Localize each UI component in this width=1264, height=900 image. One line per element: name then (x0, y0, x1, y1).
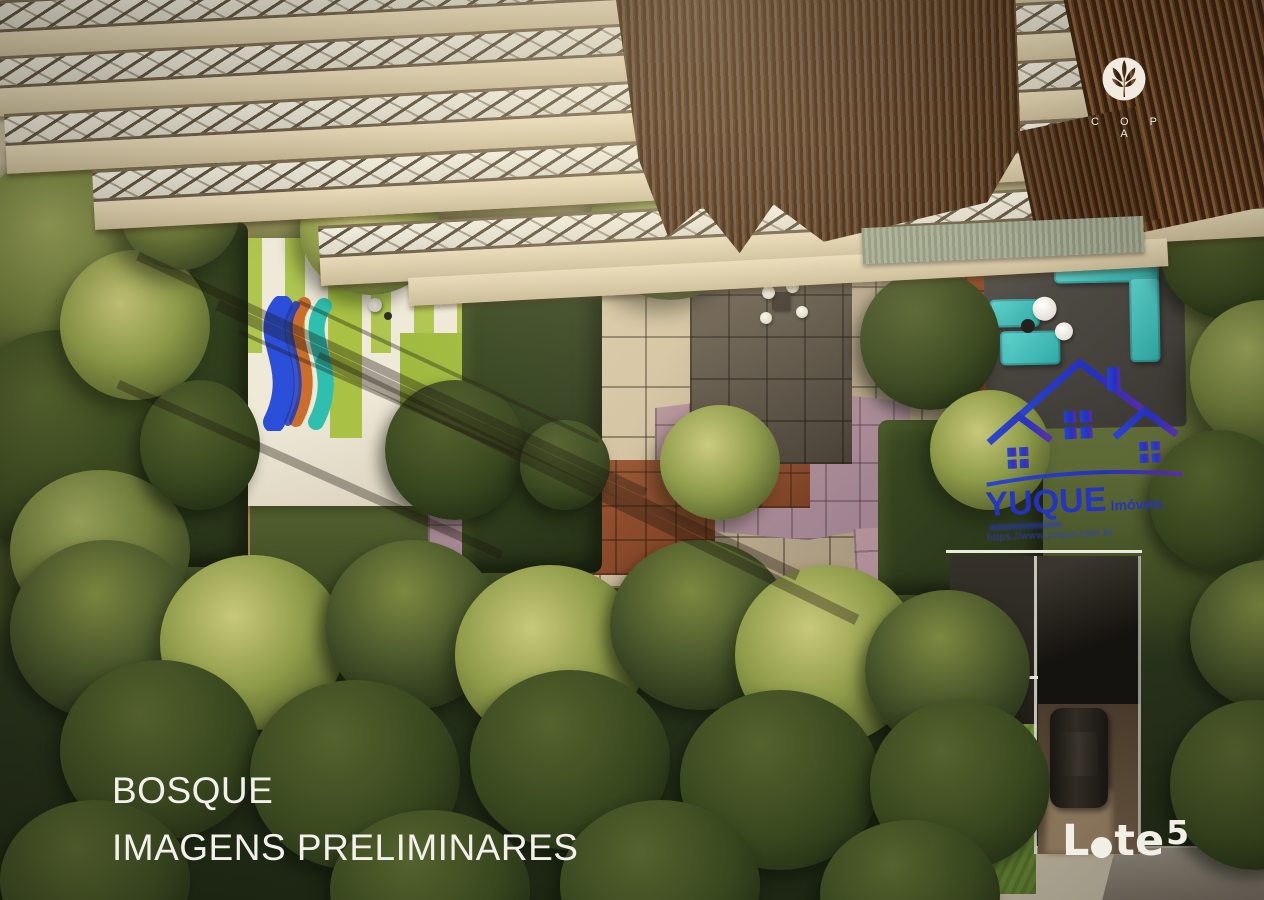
watermark: YUQUE Imóveis https://www.yuque.com.br (979, 343, 1211, 544)
lot-o-disc-icon (1091, 837, 1112, 858)
lot-badge: L te 5 (1062, 820, 1189, 863)
aerial-render-image: C O P A (0, 0, 1264, 900)
watermark-brand-suffix: Imóveis (1110, 495, 1163, 513)
copa-logo: C O P A (1078, 56, 1170, 140)
caption: BOSQUE IMAGENS PRELIMINARES (112, 762, 578, 876)
watermark-brand: YUQUE (985, 483, 1107, 522)
lot-badge-number: 5 (1166, 816, 1189, 849)
houses-outline-icon (979, 344, 1185, 487)
caption-line-1: BOSQUE (112, 762, 578, 819)
tree-crown-icon (1101, 56, 1147, 102)
copa-wordmark: C O P A (1078, 116, 1170, 140)
caption-line-2: IMAGENS PRELIMINARES (112, 819, 578, 876)
lot-badge-middle: te (1114, 820, 1164, 863)
lot-badge-prefix: L (1062, 820, 1089, 863)
